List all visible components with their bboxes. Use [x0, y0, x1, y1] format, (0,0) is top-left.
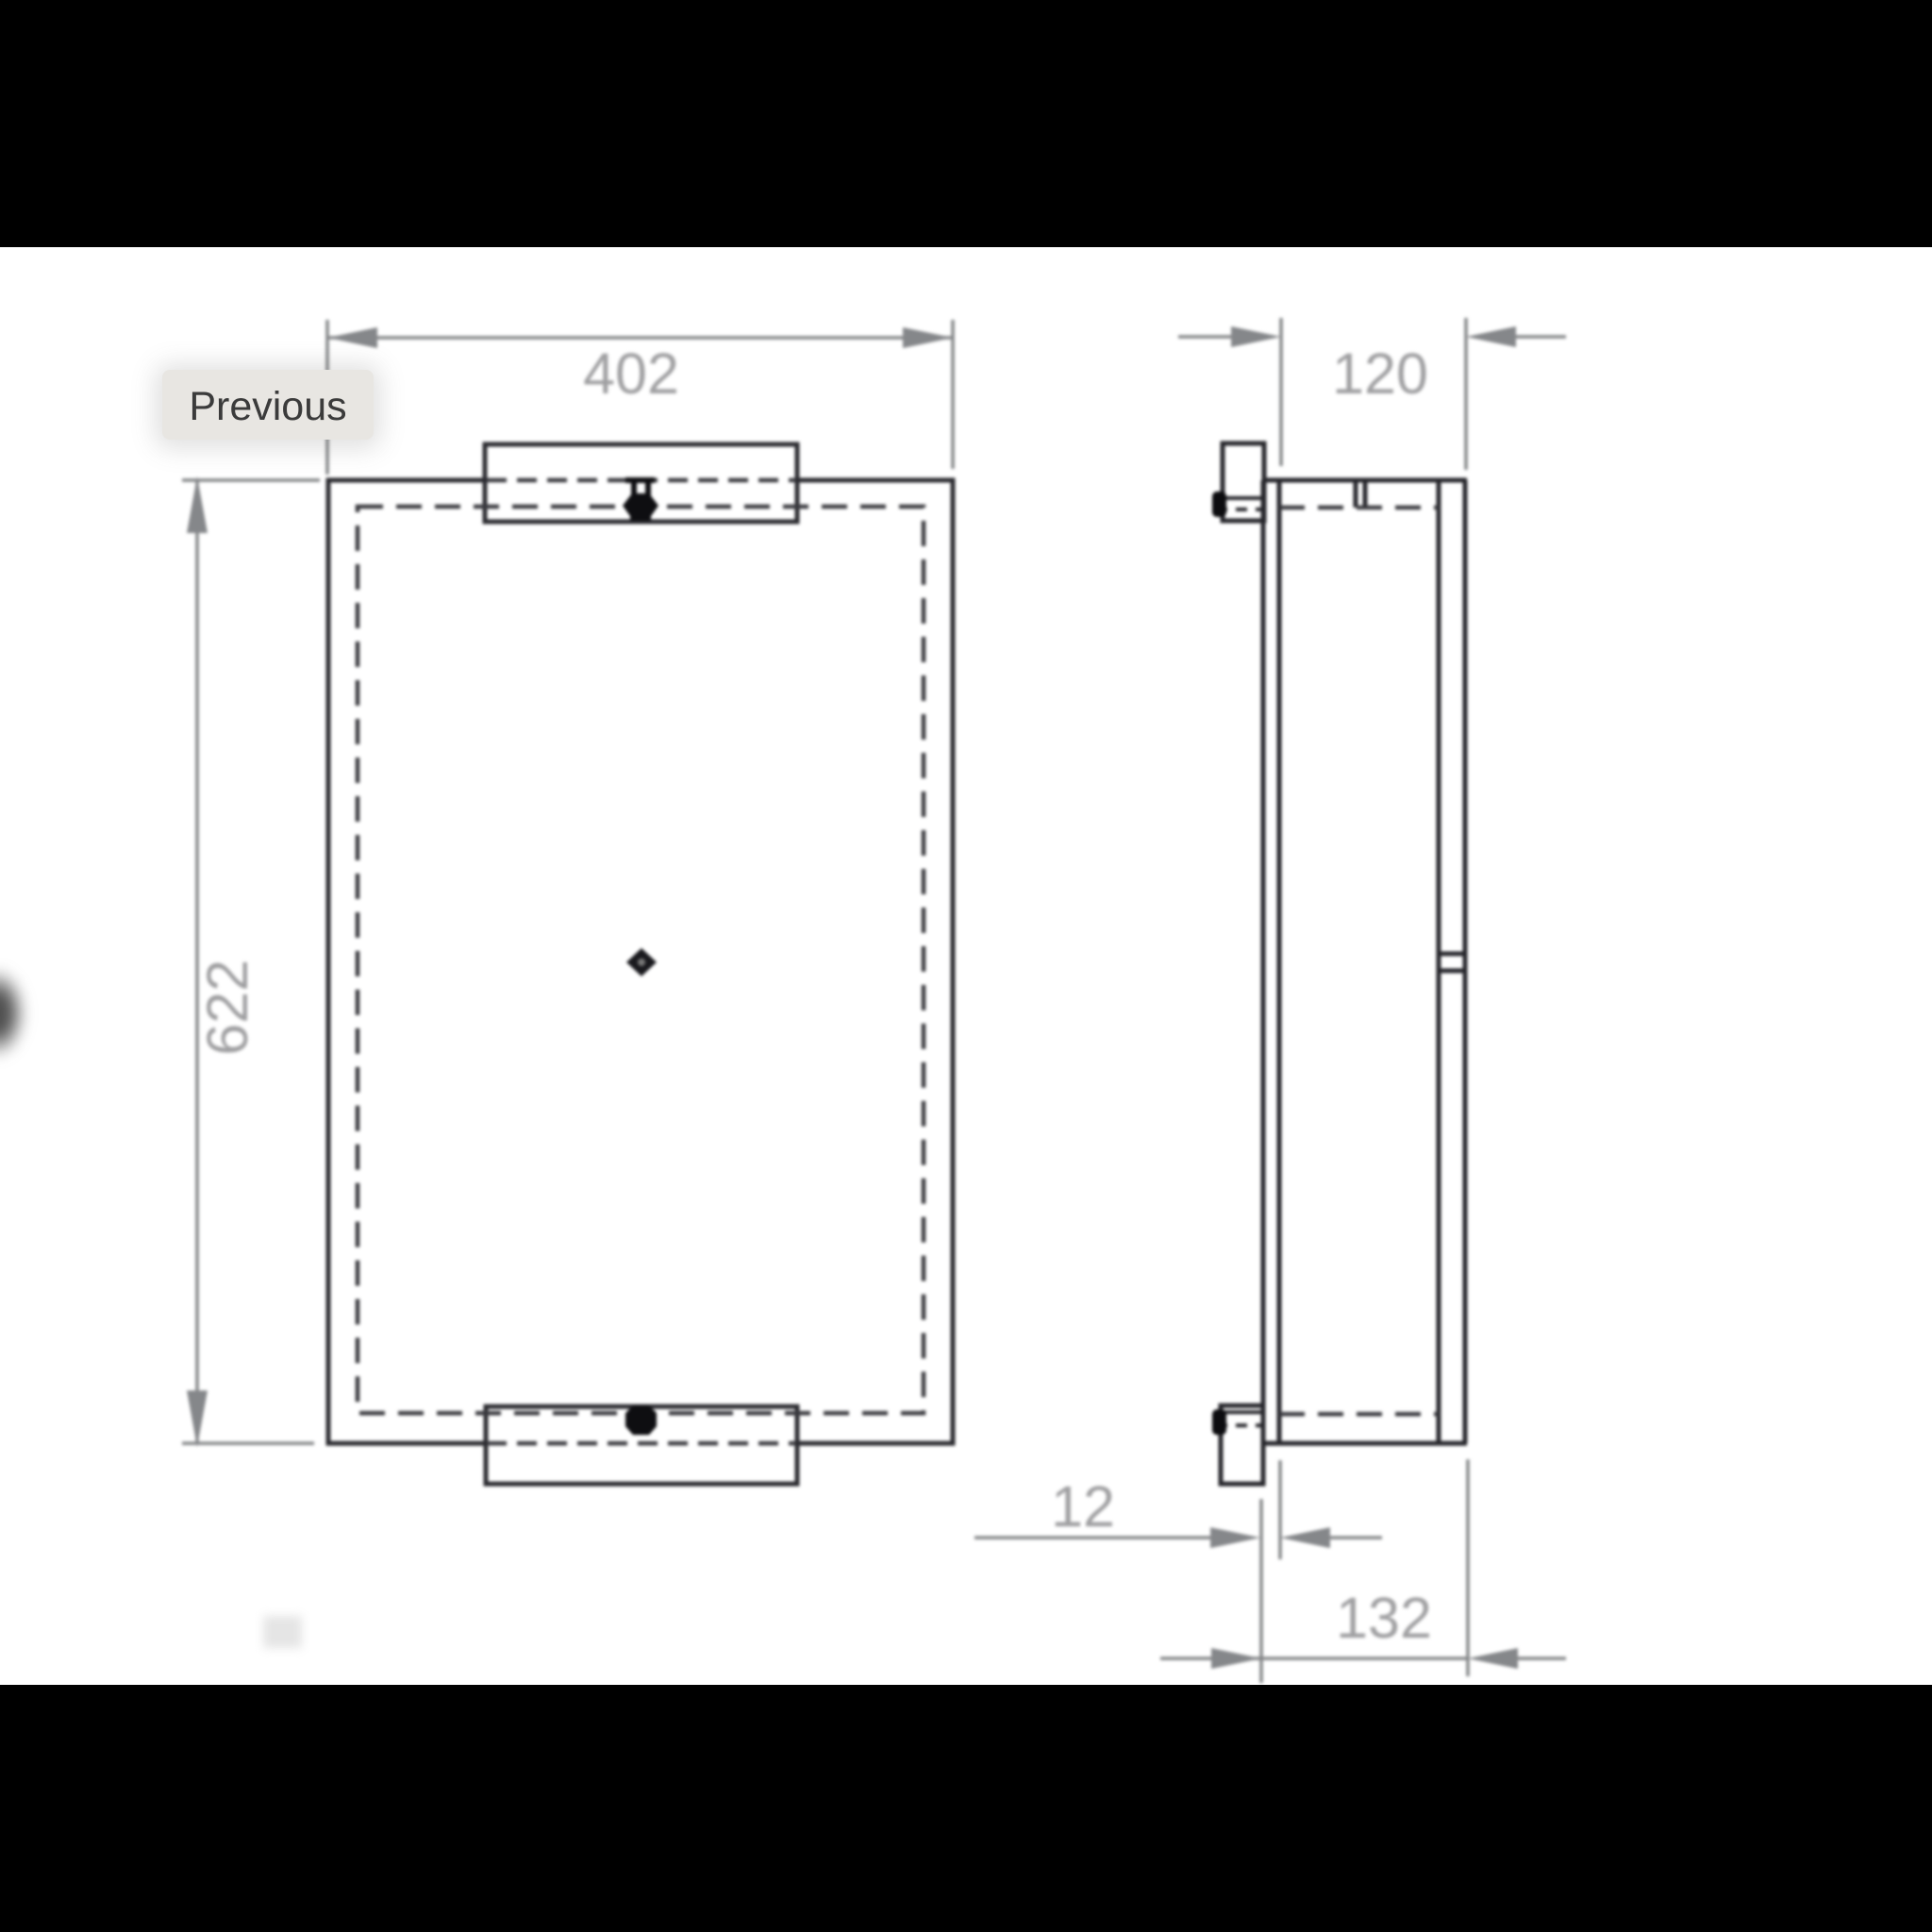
svg-text:622: 622 — [195, 959, 259, 1056]
svg-text:132: 132 — [1336, 1586, 1432, 1650]
svg-text:12: 12 — [1051, 1474, 1115, 1539]
svg-text:120: 120 — [1332, 341, 1428, 406]
svg-text:402: 402 — [583, 341, 679, 406]
